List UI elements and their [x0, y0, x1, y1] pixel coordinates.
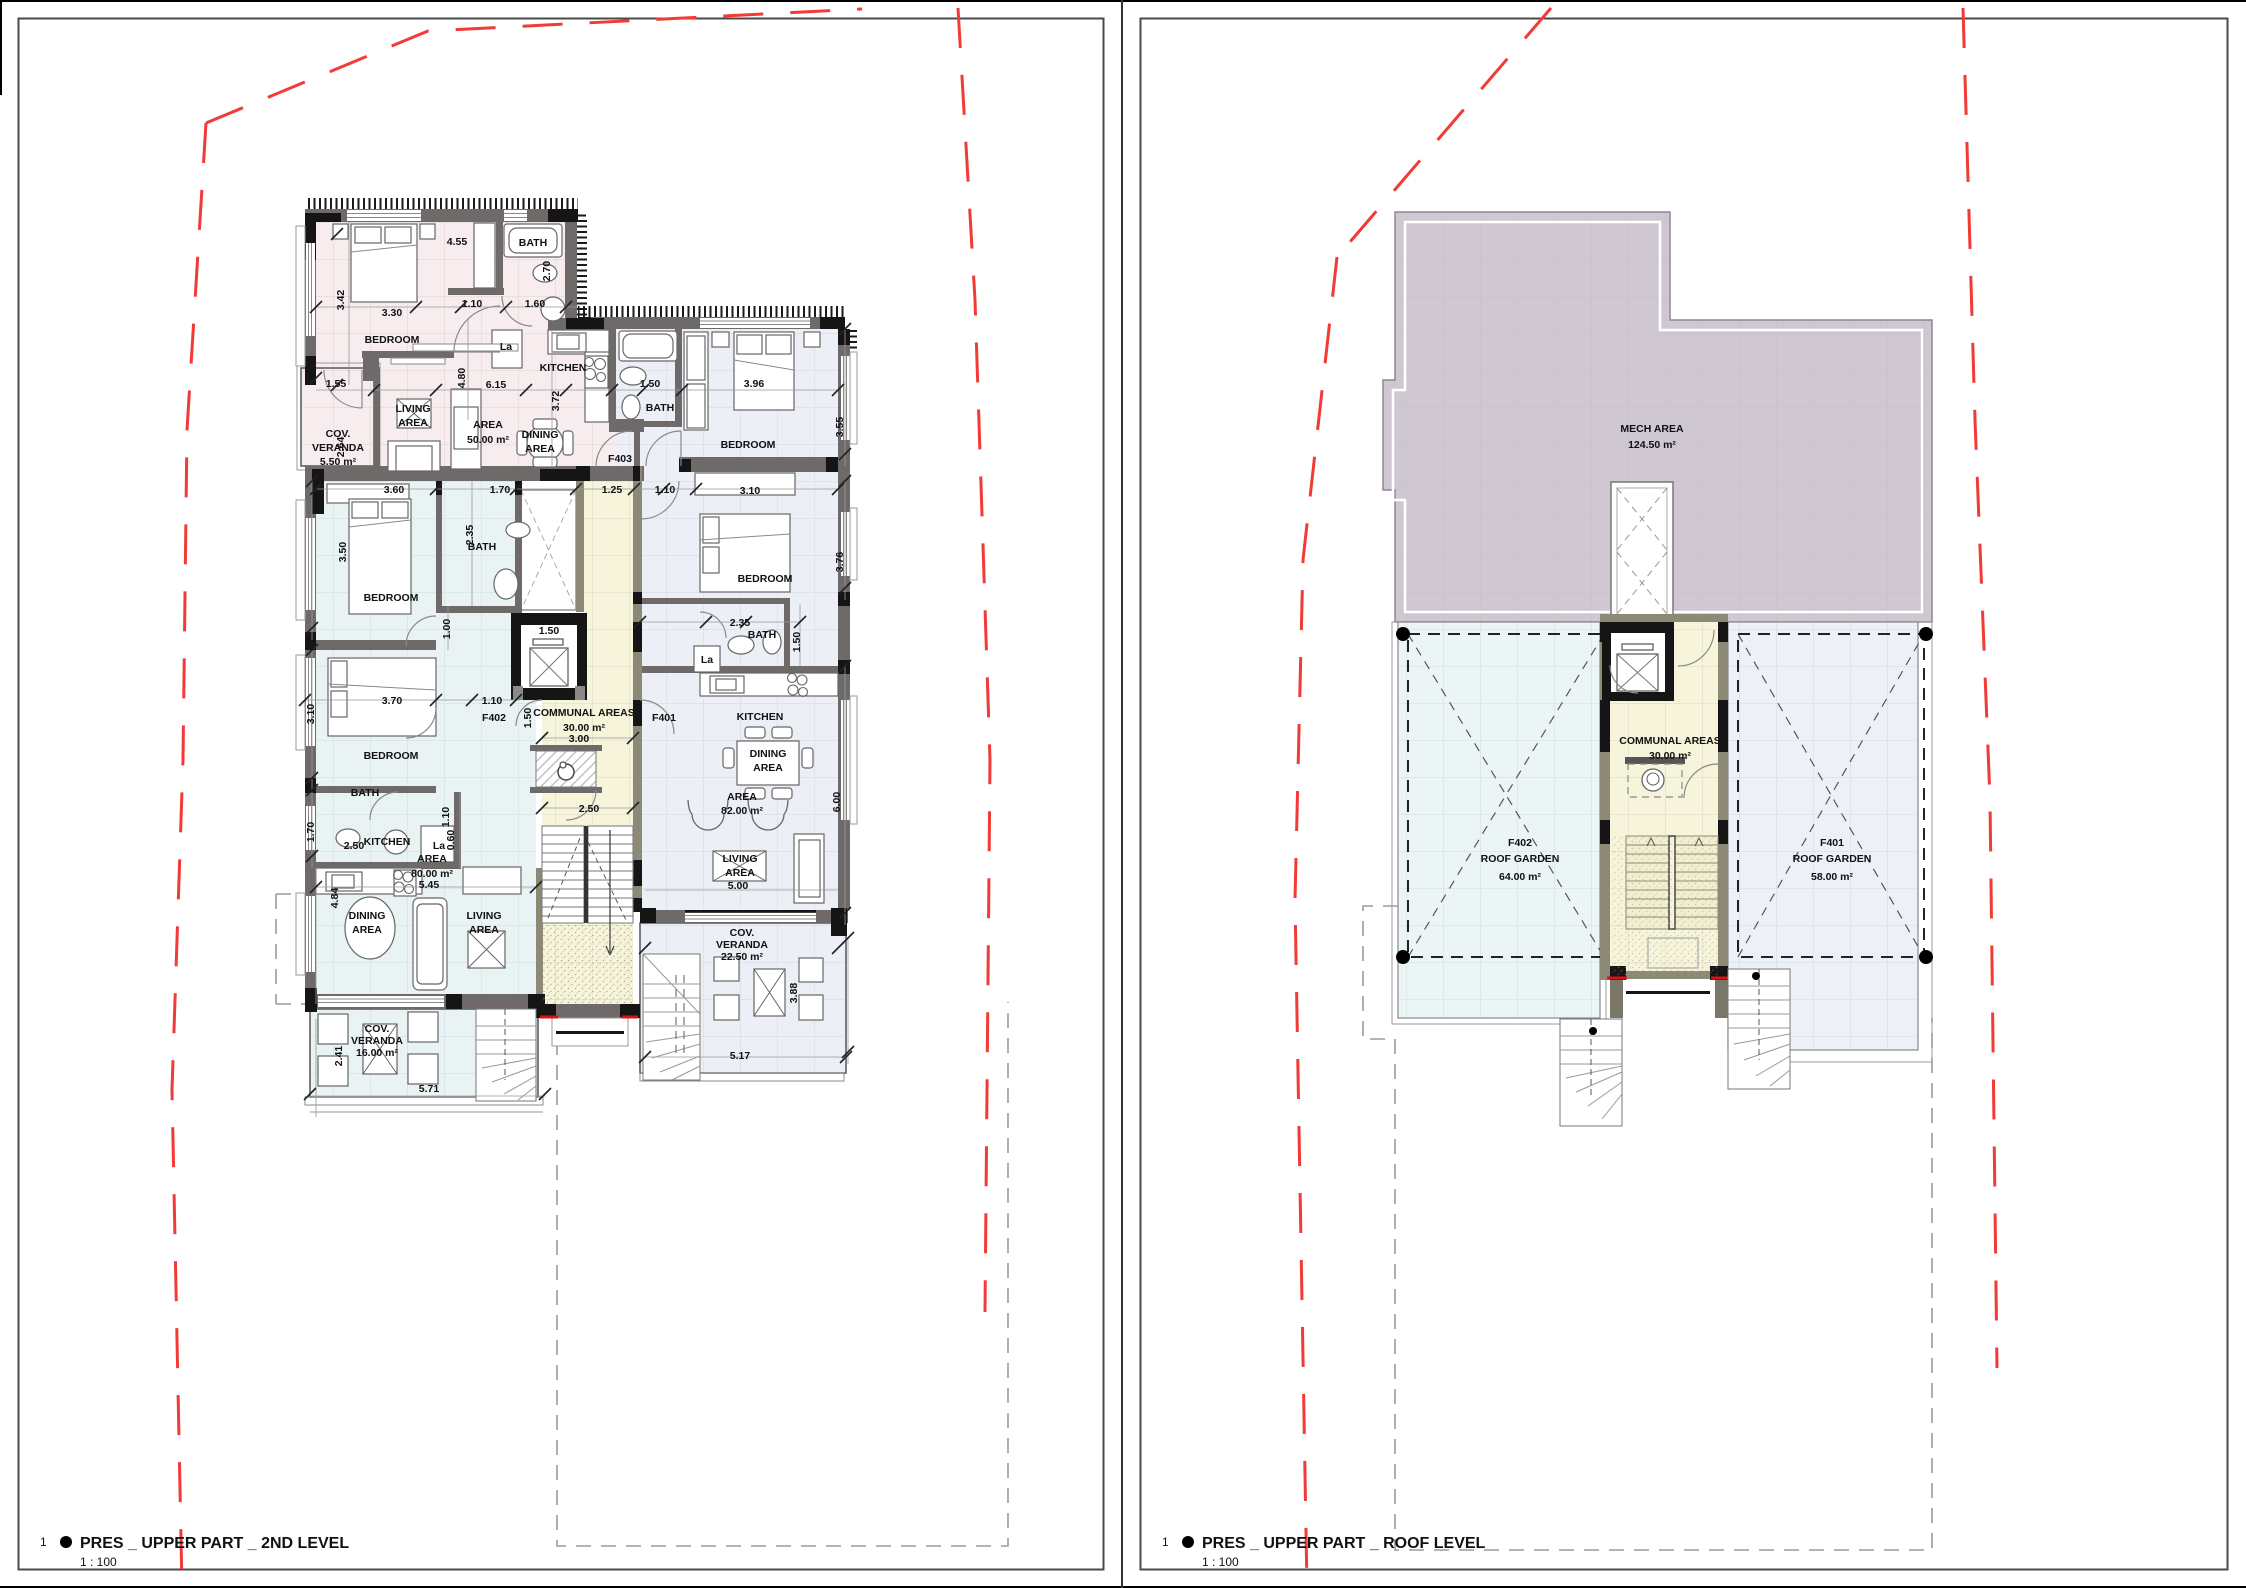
svg-text:1.10: 1.10 [462, 298, 483, 310]
svg-text:AREA: AREA [417, 853, 447, 865]
svg-text:58.00 m²: 58.00 m² [1811, 871, 1854, 883]
svg-text:AREA: AREA [727, 791, 757, 803]
svg-text:KITCHEN: KITCHEN [364, 836, 411, 848]
svg-text:PRES _ UPPER PART _ 2ND LEVEL: PRES _ UPPER PART _ 2ND LEVEL [80, 1535, 349, 1552]
svg-text:64.00 m²: 64.00 m² [1499, 871, 1542, 883]
svg-text:1.60: 1.60 [525, 298, 546, 310]
svg-text:COMMUNAL AREAS: COMMUNAL AREAS [533, 707, 635, 719]
svg-text:2.50: 2.50 [344, 840, 365, 852]
svg-text:2.70: 2.70 [541, 261, 553, 282]
svg-text:30.00 m²: 30.00 m² [1649, 750, 1692, 762]
svg-text:2.35: 2.35 [730, 617, 751, 629]
svg-text:3.42: 3.42 [335, 290, 347, 311]
svg-text:2.35: 2.35 [464, 525, 476, 546]
svg-text:6.15: 6.15 [486, 379, 507, 391]
svg-text:3.88: 3.88 [788, 983, 800, 1004]
svg-text:1.70: 1.70 [490, 484, 511, 496]
svg-text:4.84: 4.84 [329, 888, 341, 909]
svg-text:2.41: 2.41 [333, 1046, 345, 1067]
svg-text:COMMUNAL AREAS: COMMUNAL AREAS [1619, 735, 1721, 747]
svg-text:F402: F402 [1508, 837, 1532, 849]
svg-text:PRES _ UPPER PART _ ROOF LEVEL: PRES _ UPPER PART _ ROOF LEVEL [1202, 1535, 1486, 1552]
svg-text:F402: F402 [482, 712, 506, 724]
svg-text:5.00: 5.00 [728, 880, 749, 892]
svg-text:3.76: 3.76 [834, 552, 846, 573]
svg-text:3.10: 3.10 [305, 704, 317, 725]
svg-text:AREA: AREA [473, 419, 503, 431]
svg-text:BEDROOM: BEDROOM [364, 592, 419, 604]
svg-text:COV.: COV. [730, 927, 755, 939]
svg-text:4.55: 4.55 [447, 236, 468, 248]
svg-text:1.50: 1.50 [539, 625, 560, 637]
svg-text:LIVING: LIVING [466, 910, 501, 922]
svg-text:VERANDA: VERANDA [716, 939, 768, 951]
svg-text:1.10: 1.10 [482, 695, 503, 707]
svg-text:La: La [701, 654, 713, 666]
svg-text:1.25: 1.25 [602, 484, 623, 496]
svg-text:BATH: BATH [748, 629, 776, 641]
svg-text:AREA: AREA [753, 762, 783, 774]
svg-text:1 : 100: 1 : 100 [1202, 1555, 1239, 1569]
svg-text:6.00: 6.00 [831, 792, 843, 813]
svg-text:1.00: 1.00 [441, 619, 453, 640]
svg-text:3.30: 3.30 [382, 307, 403, 319]
svg-text:BEDROOM: BEDROOM [365, 334, 420, 346]
svg-text:DINING: DINING [522, 429, 559, 441]
svg-text:124.50 m²: 124.50 m² [1628, 439, 1676, 451]
svg-text:16.00 m²: 16.00 m² [356, 1047, 399, 1059]
svg-text:22.50 m²: 22.50 m² [721, 951, 764, 963]
svg-text:F403: F403 [608, 453, 632, 465]
svg-text:1.10: 1.10 [655, 484, 676, 496]
svg-text:BATH: BATH [351, 787, 379, 799]
svg-text:MECH AREA: MECH AREA [1620, 423, 1684, 435]
svg-text:3.72: 3.72 [550, 391, 562, 412]
svg-text:1.70: 1.70 [305, 822, 317, 843]
svg-text:50.00 m²: 50.00 m² [467, 434, 510, 446]
svg-text:AREA: AREA [725, 867, 755, 879]
svg-text:BEDROOM: BEDROOM [738, 573, 793, 585]
svg-text:3.00: 3.00 [569, 733, 590, 745]
svg-text:1 : 100: 1 : 100 [80, 1555, 117, 1569]
svg-text:KITCHEN: KITCHEN [540, 362, 587, 374]
svg-text:VERANDA: VERANDA [351, 1035, 403, 1047]
svg-text:1: 1 [1162, 1535, 1169, 1549]
svg-text:1.50: 1.50 [640, 378, 661, 390]
svg-text:AREA: AREA [469, 924, 499, 936]
svg-text:3.70: 3.70 [382, 695, 403, 707]
svg-text:KITCHEN: KITCHEN [737, 711, 784, 723]
svg-text:AREA: AREA [525, 443, 555, 455]
svg-text:F401: F401 [652, 712, 676, 724]
svg-text:0.60: 0.60 [445, 830, 457, 851]
svg-text:4.80: 4.80 [456, 368, 468, 389]
svg-text:3.50: 3.50 [337, 542, 349, 563]
svg-text:LIVING: LIVING [722, 853, 757, 865]
svg-text:F401: F401 [1820, 837, 1844, 849]
svg-text:3.60: 3.60 [384, 484, 405, 496]
svg-text:1.50: 1.50 [791, 632, 803, 653]
svg-text:3.55: 3.55 [834, 417, 846, 438]
svg-text:ROOF GARDEN: ROOF GARDEN [1793, 853, 1872, 865]
svg-text:La: La [433, 840, 445, 852]
svg-text:BEDROOM: BEDROOM [364, 750, 419, 762]
svg-text:BEDROOM: BEDROOM [721, 439, 776, 451]
svg-text:BATH: BATH [646, 402, 674, 414]
svg-text:1: 1 [40, 1535, 47, 1549]
svg-text:5.45: 5.45 [419, 879, 440, 891]
svg-text:2.64: 2.64 [335, 437, 347, 458]
svg-text:AREA: AREA [352, 924, 382, 936]
svg-text:DINING: DINING [750, 748, 787, 760]
svg-text:1.50: 1.50 [522, 708, 534, 729]
svg-text:La: La [500, 341, 512, 353]
svg-text:2.50: 2.50 [579, 803, 600, 815]
svg-text:LIVING: LIVING [395, 403, 430, 415]
svg-text:1.55: 1.55 [326, 378, 347, 390]
svg-text:82.00 m²: 82.00 m² [721, 805, 764, 817]
svg-text:AREA: AREA [398, 417, 428, 429]
svg-text:1.10: 1.10 [440, 807, 452, 828]
svg-text:DINING: DINING [349, 910, 386, 922]
svg-text:ROOF GARDEN: ROOF GARDEN [1481, 853, 1560, 865]
svg-text:5.71: 5.71 [419, 1083, 440, 1095]
svg-text:COV.: COV. [365, 1023, 390, 1035]
svg-text:BATH: BATH [519, 237, 547, 249]
svg-text:3.96: 3.96 [744, 378, 765, 390]
svg-text:5.17: 5.17 [730, 1050, 751, 1062]
svg-text:3.10: 3.10 [740, 485, 761, 497]
